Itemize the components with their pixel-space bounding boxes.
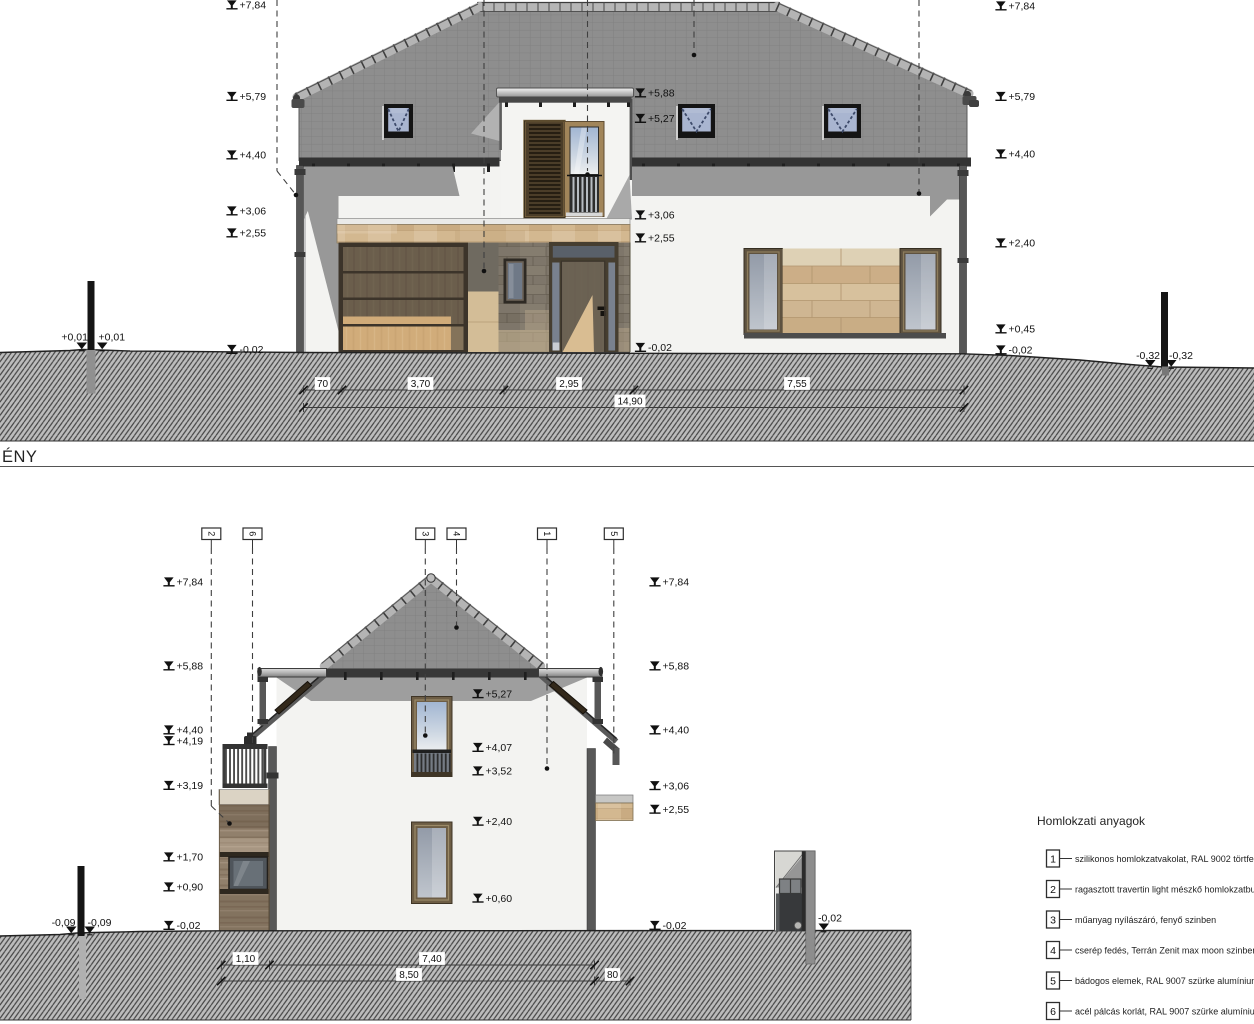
- svg-text:+3,52: +3,52: [486, 766, 513, 778]
- svg-text:Homlokzati anyagok: Homlokzati anyagok: [1037, 814, 1146, 828]
- svg-text:szilikonos homlokzatvakolat, R: szilikonos homlokzatvakolat, RAL 9002 tö…: [1075, 854, 1254, 864]
- svg-text:7,40: 7,40: [422, 954, 442, 965]
- svg-text:+5,88: +5,88: [177, 661, 204, 673]
- svg-text:4: 4: [1050, 945, 1056, 957]
- svg-text:+2,55: +2,55: [240, 228, 267, 240]
- svg-text:+5,79: +5,79: [240, 91, 267, 103]
- svg-text:+5,79: +5,79: [1009, 91, 1036, 103]
- svg-text:4: 4: [452, 531, 462, 536]
- svg-text:+5,88: +5,88: [648, 88, 675, 100]
- svg-text:acél pálcás korlát, RAL 9007 s: acél pálcás korlát, RAL 9007 szürke alum…: [1075, 1006, 1254, 1016]
- svg-text:8,50: 8,50: [399, 970, 419, 981]
- svg-text:+3,19: +3,19: [177, 780, 204, 792]
- svg-text:2: 2: [206, 531, 216, 536]
- svg-text:2,95: 2,95: [559, 379, 579, 390]
- svg-text:6: 6: [1050, 1006, 1056, 1018]
- svg-text:3: 3: [420, 531, 430, 536]
- svg-text:műanyag nyílászáró, fenyő szin: műanyag nyílászáró, fenyő szinben: [1075, 915, 1216, 925]
- svg-text:+3,06: +3,06: [663, 780, 690, 792]
- svg-text:1: 1: [1050, 853, 1056, 865]
- svg-text:3,70: 3,70: [411, 379, 431, 390]
- svg-text:2: 2: [1050, 884, 1056, 896]
- svg-text:1,10: 1,10: [236, 954, 256, 965]
- svg-text:+7,84: +7,84: [1009, 1, 1036, 13]
- svg-text:3: 3: [1050, 914, 1056, 926]
- svg-text:+2,40: +2,40: [1009, 238, 1036, 250]
- svg-text:+4,07: +4,07: [486, 742, 513, 754]
- svg-text:+5,27: +5,27: [648, 113, 675, 125]
- svg-text:cserép fedés, Terrán Zenit max: cserép fedés, Terrán Zenit max moon szin…: [1075, 945, 1254, 955]
- svg-text:-0,02: -0,02: [240, 344, 264, 356]
- svg-text:+0,01: +0,01: [99, 332, 126, 344]
- svg-text:+2,40: +2,40: [486, 816, 513, 828]
- svg-text:+0,60: +0,60: [486, 893, 513, 905]
- svg-text:+0,01: +0,01: [61, 332, 88, 344]
- svg-text:7,55: 7,55: [787, 379, 807, 390]
- svg-text:+7,84: +7,84: [240, 0, 267, 12]
- svg-text:+4,40: +4,40: [663, 725, 690, 737]
- svg-text:-0,02: -0,02: [648, 342, 672, 354]
- svg-text:+5,27: +5,27: [486, 689, 513, 701]
- svg-text:+0,90: +0,90: [177, 882, 204, 894]
- svg-text:+2,55: +2,55: [648, 233, 675, 245]
- svg-text:ÉNY: ÉNY: [2, 447, 37, 466]
- svg-text:+7,84: +7,84: [177, 577, 204, 589]
- svg-text:-0,02: -0,02: [1009, 345, 1033, 357]
- svg-text:1: 1: [542, 531, 552, 536]
- svg-text:+2,55: +2,55: [663, 804, 690, 816]
- svg-text:5: 5: [1050, 975, 1056, 987]
- svg-text:+7,84: +7,84: [663, 577, 690, 589]
- svg-text:ragasztott travertin light més: ragasztott travertin light mészkő homlok…: [1075, 884, 1254, 894]
- svg-text:-0,02: -0,02: [177, 920, 201, 932]
- svg-text:+5,88: +5,88: [663, 661, 690, 673]
- svg-text:6: 6: [248, 531, 258, 536]
- svg-text:+1,70: +1,70: [177, 852, 204, 864]
- svg-text:+3,06: +3,06: [648, 210, 675, 222]
- svg-text:+3,06: +3,06: [240, 206, 267, 218]
- svg-text:-0,02: -0,02: [818, 913, 842, 925]
- svg-text:bádogos elemek, RAL 9007 szürk: bádogos elemek, RAL 9007 szürke alumíniu…: [1075, 976, 1254, 986]
- svg-text:+0,45: +0,45: [1009, 324, 1036, 336]
- svg-text:14,90: 14,90: [617, 396, 642, 407]
- svg-text:-0,02: -0,02: [663, 920, 687, 932]
- svg-text:80: 80: [607, 970, 619, 981]
- svg-text:+4,19: +4,19: [177, 735, 204, 747]
- svg-text:+4,40: +4,40: [1009, 149, 1036, 161]
- svg-text:70: 70: [317, 379, 329, 390]
- svg-text:+4,40: +4,40: [240, 150, 267, 162]
- svg-text:5: 5: [609, 531, 619, 536]
